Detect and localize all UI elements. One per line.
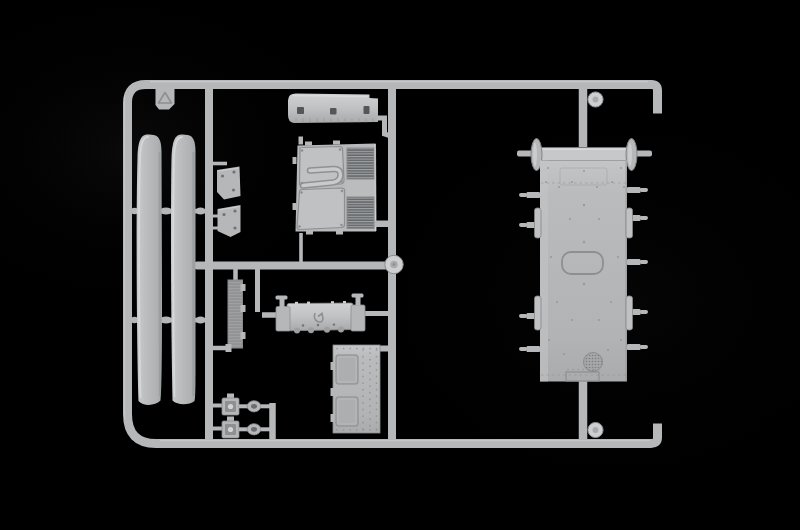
panel-body	[540, 161, 627, 382]
panel-tab	[626, 208, 633, 238]
grille-lower	[347, 197, 374, 229]
panel-tab	[626, 296, 633, 330]
radiator-tab-1	[241, 284, 246, 291]
recycling-tag	[156, 89, 175, 110]
trim-strip-front	[137, 134, 162, 404]
panel-tab	[535, 208, 542, 238]
mirror-lens-upper	[228, 404, 233, 409]
sprue-photo: Plastic model kit sprue on black backgro…	[0, 0, 800, 530]
roof-slot-2	[330, 108, 337, 115]
windshield-frame-lower	[297, 188, 345, 230]
box-door-lower	[336, 397, 358, 426]
trim-strip-rear	[171, 134, 196, 404]
molding-disc-bottom	[588, 422, 603, 437]
photo-stage: Plastic model kit sprue on black backgro…	[0, 0, 800, 530]
molding-disc-center	[385, 255, 403, 273]
box-door-upper	[336, 355, 358, 384]
radiator-tab-2	[241, 305, 246, 312]
roof-slot-3	[364, 106, 370, 114]
grille-upper	[347, 148, 374, 179]
cab-front-part	[293, 137, 390, 235]
cab-right-gate	[375, 221, 389, 228]
panel-tab	[535, 296, 542, 330]
molding-disc-top	[588, 92, 603, 107]
grille-middle-band	[347, 181, 376, 197]
cab-top-pin	[299, 137, 304, 145]
radiator-tab-3	[241, 332, 246, 339]
bracket-upper	[217, 167, 241, 200]
radiator-part	[226, 280, 246, 352]
bracket-lower	[218, 205, 241, 237]
mirror-lens-lower	[228, 427, 233, 432]
roof-slot-1	[297, 107, 304, 114]
